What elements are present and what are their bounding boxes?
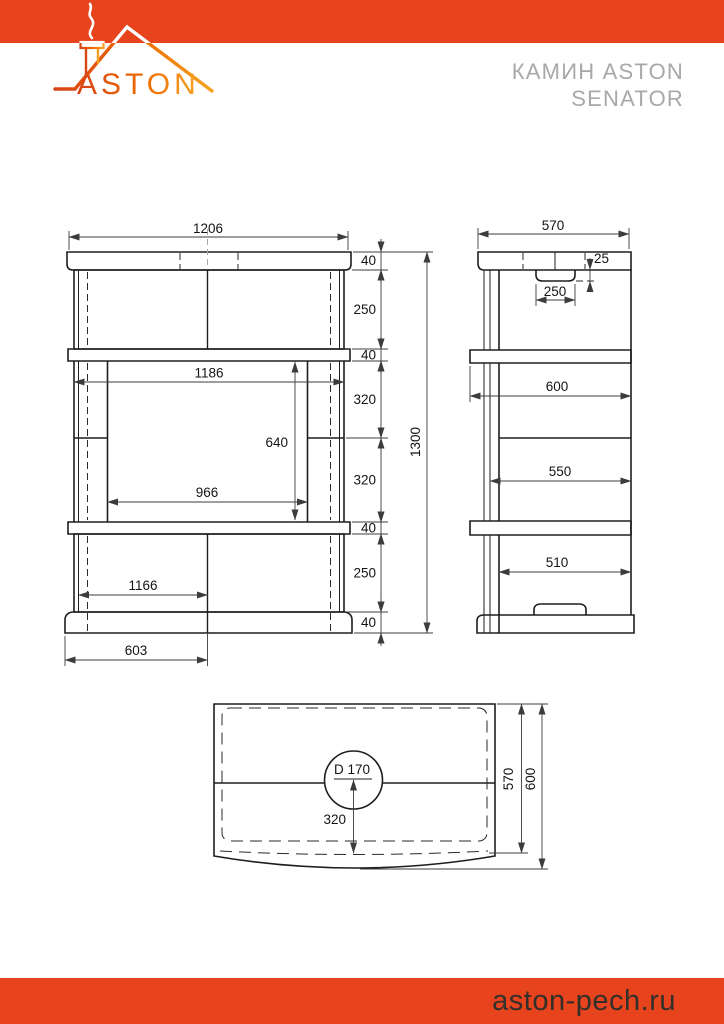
dim-flue-diameter: D 170 xyxy=(334,762,370,777)
side-base-plinth xyxy=(477,615,634,633)
dim-base-half-width: 603 xyxy=(125,643,148,658)
side-foot xyxy=(534,604,586,615)
dim-outer-depth: 600 xyxy=(523,768,538,791)
dim-lower-depth: 510 xyxy=(546,555,569,570)
dim-upper-depth: 600 xyxy=(546,379,569,394)
dim-overall-height: 1300 xyxy=(408,427,423,457)
dim-flue-offset: 320 xyxy=(323,812,346,827)
dim-opening-height: 640 xyxy=(265,435,288,450)
dim-lintel-height: 25 xyxy=(594,251,609,266)
dim-overall-width: 1206 xyxy=(193,221,223,236)
dim-opening-width: 966 xyxy=(196,485,219,500)
dim-body-width: 1186 xyxy=(194,366,223,381)
front-view: 1206 40 250 40 320 320 40 250 40 1300 11… xyxy=(65,221,433,666)
dim-h2: 250 xyxy=(353,302,376,317)
front-base-plinth xyxy=(65,612,352,633)
front-shelf-lower xyxy=(68,522,350,534)
side-shelf-lower xyxy=(470,521,631,535)
dim-inner-depth: 570 xyxy=(501,768,516,791)
dim-h7: 250 xyxy=(353,566,376,581)
dim-h1: 40 xyxy=(361,253,376,268)
dim-h3: 40 xyxy=(361,348,376,363)
dim-h5: 320 xyxy=(353,473,376,488)
dim-h6: 40 xyxy=(361,521,376,536)
top-view: D 170 320 570 600 xyxy=(214,704,548,869)
side-shelf-upper xyxy=(470,350,631,363)
dim-middle-depth: 550 xyxy=(549,464,572,479)
side-view: 570 25 250 600 550 510 xyxy=(470,218,634,633)
front-shelf-upper xyxy=(68,349,350,361)
side-lintel xyxy=(536,270,575,281)
footer-site-url: aston-pech.ru xyxy=(492,985,724,1018)
front-upper-body xyxy=(74,270,344,349)
dim-depth: 570 xyxy=(542,218,565,233)
dim-lintel-width: 250 xyxy=(544,284,567,299)
plan-hidden-front-edge xyxy=(220,851,488,855)
front-mantel-shelf xyxy=(67,252,351,270)
dim-h4: 320 xyxy=(353,392,376,407)
dim-base-inner-width: 1166 xyxy=(128,578,157,593)
footer-bar: aston-pech.ru xyxy=(0,978,724,1024)
dim-h8: 40 xyxy=(361,615,376,630)
technical-drawing: 1206 40 250 40 320 320 40 250 40 1300 11… xyxy=(0,0,724,1024)
front-lower-body xyxy=(74,534,344,612)
